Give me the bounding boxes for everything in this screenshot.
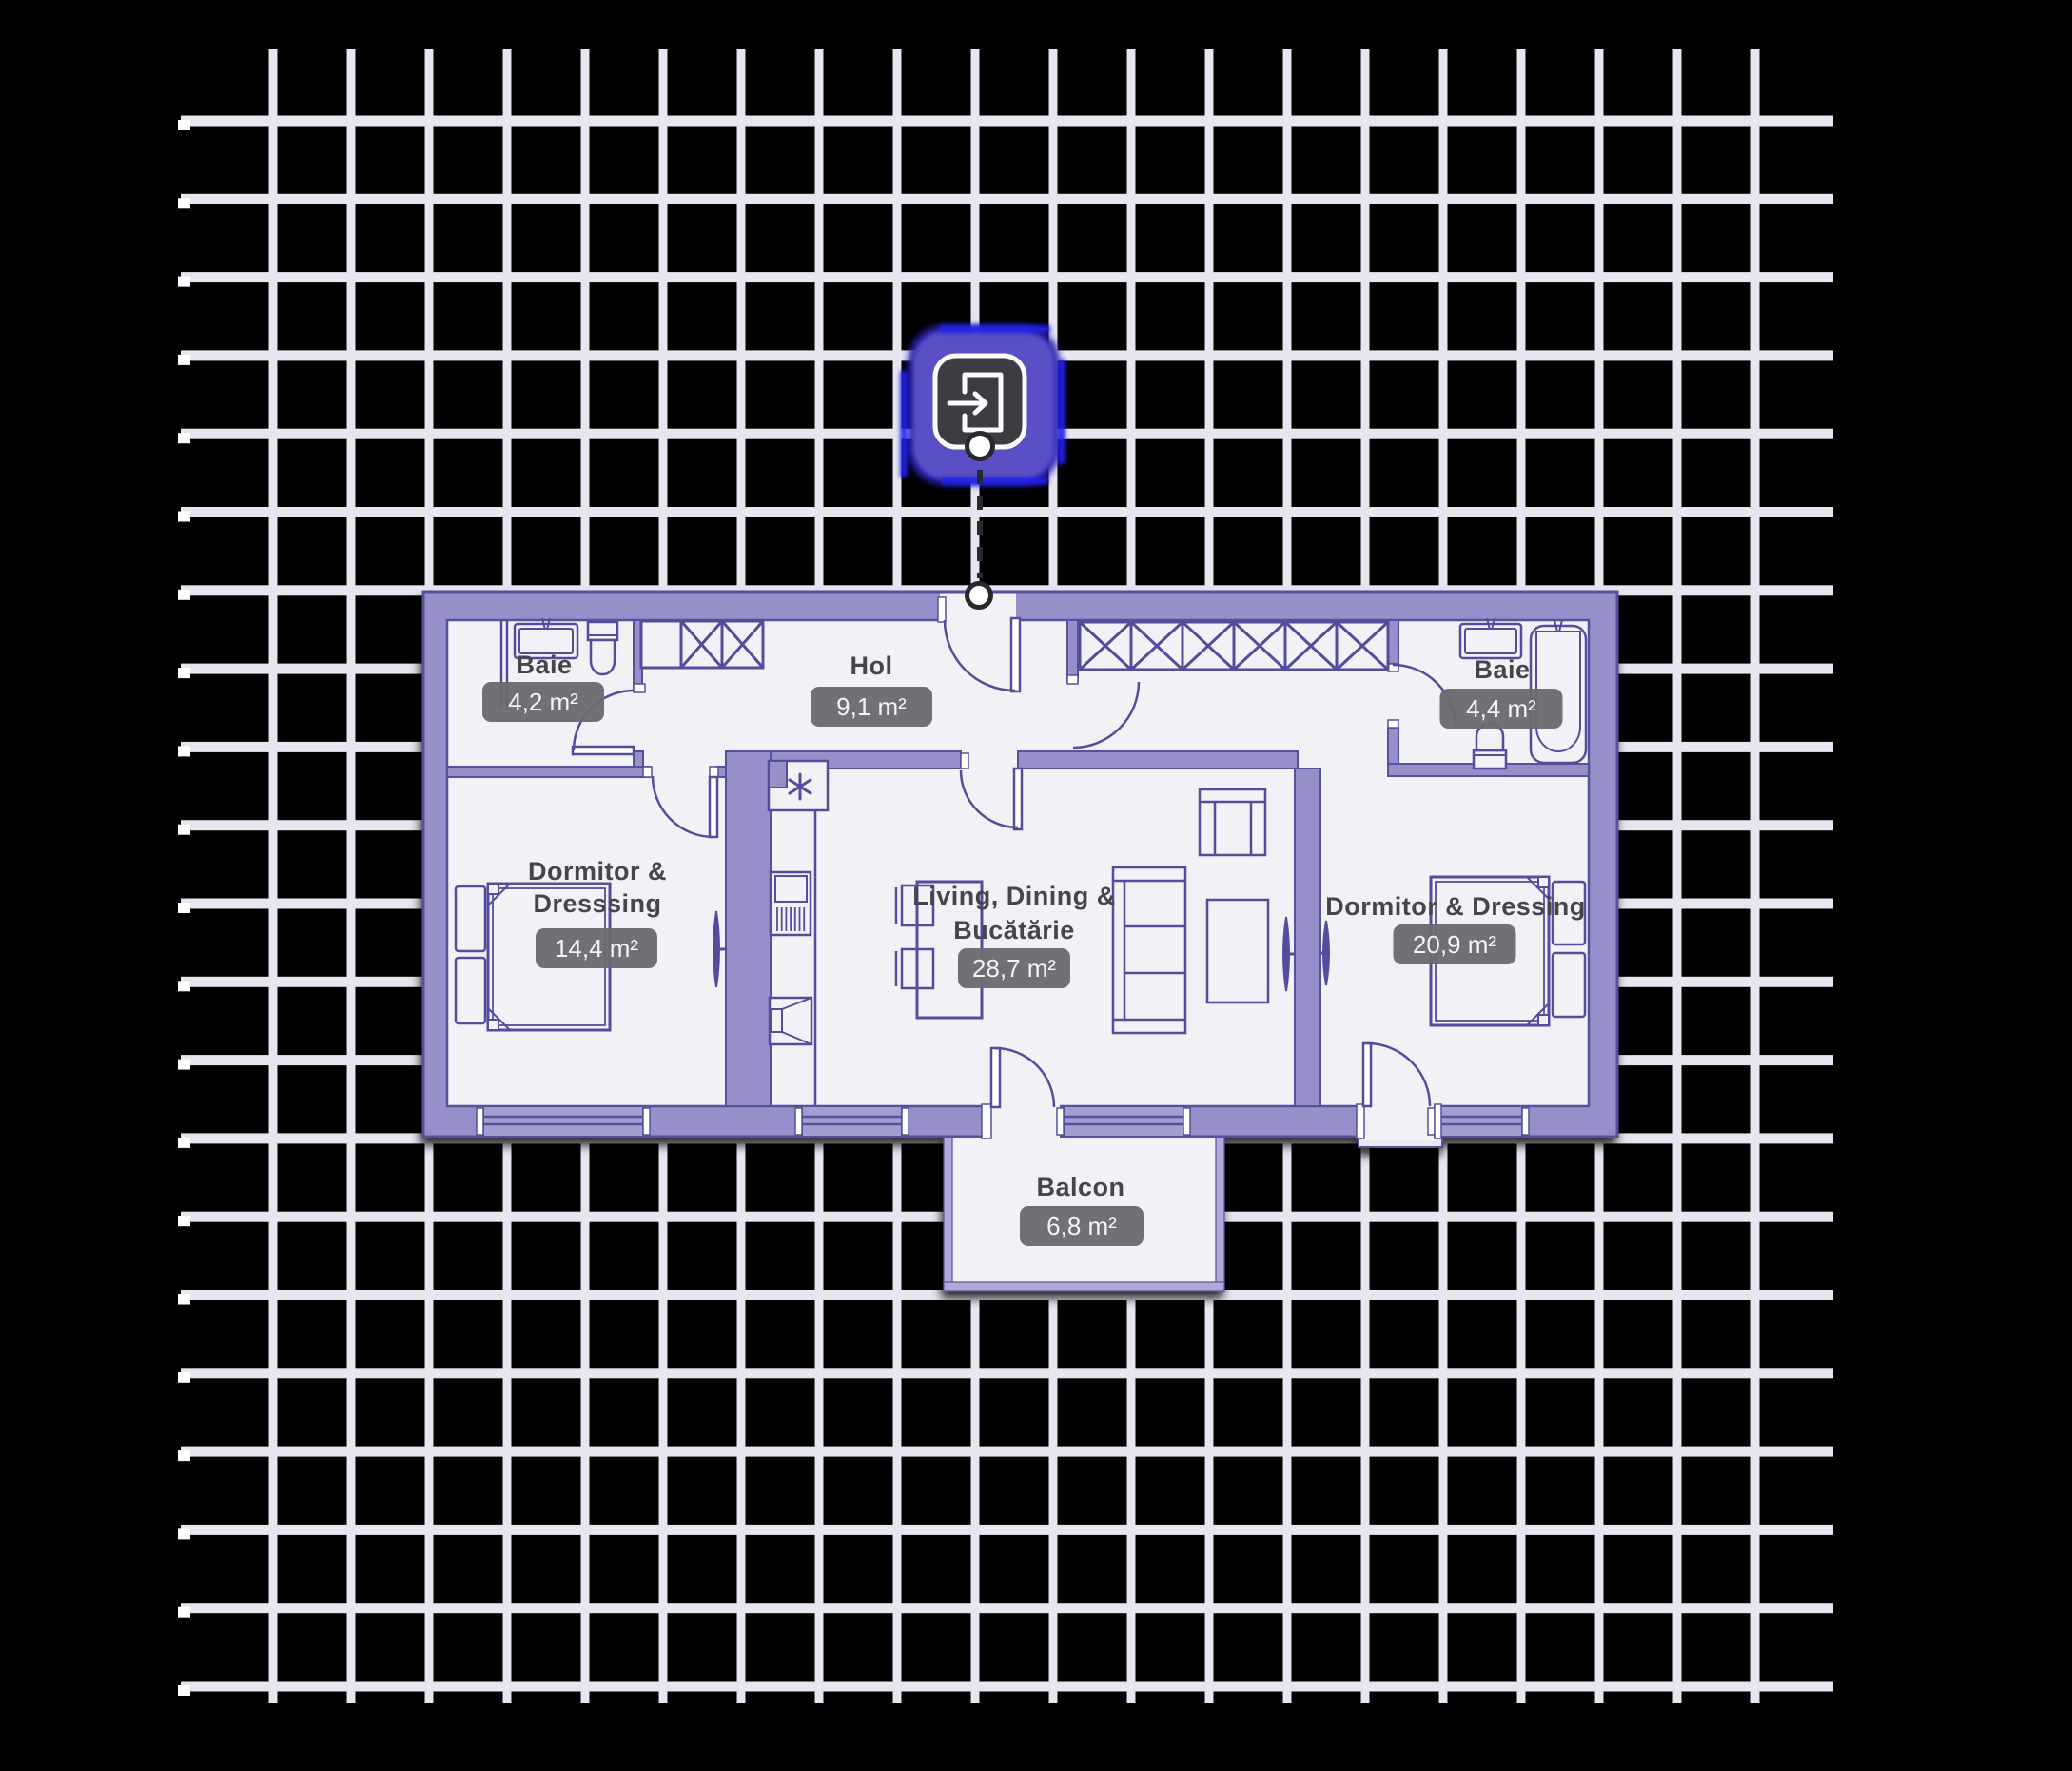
svg-text:9,1 m²: 9,1 m² — [836, 692, 907, 721]
svg-text:6,8 m²: 6,8 m² — [1046, 1212, 1117, 1240]
svg-text:Dresssing: Dresssing — [533, 889, 661, 918]
svg-text:Baie: Baie — [516, 651, 572, 679]
svg-text:Balcon: Balcon — [1036, 1173, 1124, 1201]
svg-text:4,4 m²: 4,4 m² — [1466, 694, 1536, 723]
svg-text:20,9 m²: 20,9 m² — [1413, 930, 1496, 959]
svg-text:Dormitor &: Dormitor & — [528, 857, 667, 885]
svg-text:Baie: Baie — [1474, 655, 1530, 684]
svg-text:4,2 m²: 4,2 m² — [508, 688, 578, 716]
svg-text:Hol: Hol — [850, 652, 893, 680]
svg-text:Dormitor & Dressing: Dormitor & Dressing — [1325, 892, 1586, 921]
svg-text:Bucătărie: Bucătărie — [953, 916, 1075, 944]
svg-text:Living, Dining &: Living, Dining & — [912, 882, 1115, 910]
svg-text:28,7 m²: 28,7 m² — [972, 954, 1056, 983]
svg-text:14,4 m²: 14,4 m² — [555, 934, 638, 963]
